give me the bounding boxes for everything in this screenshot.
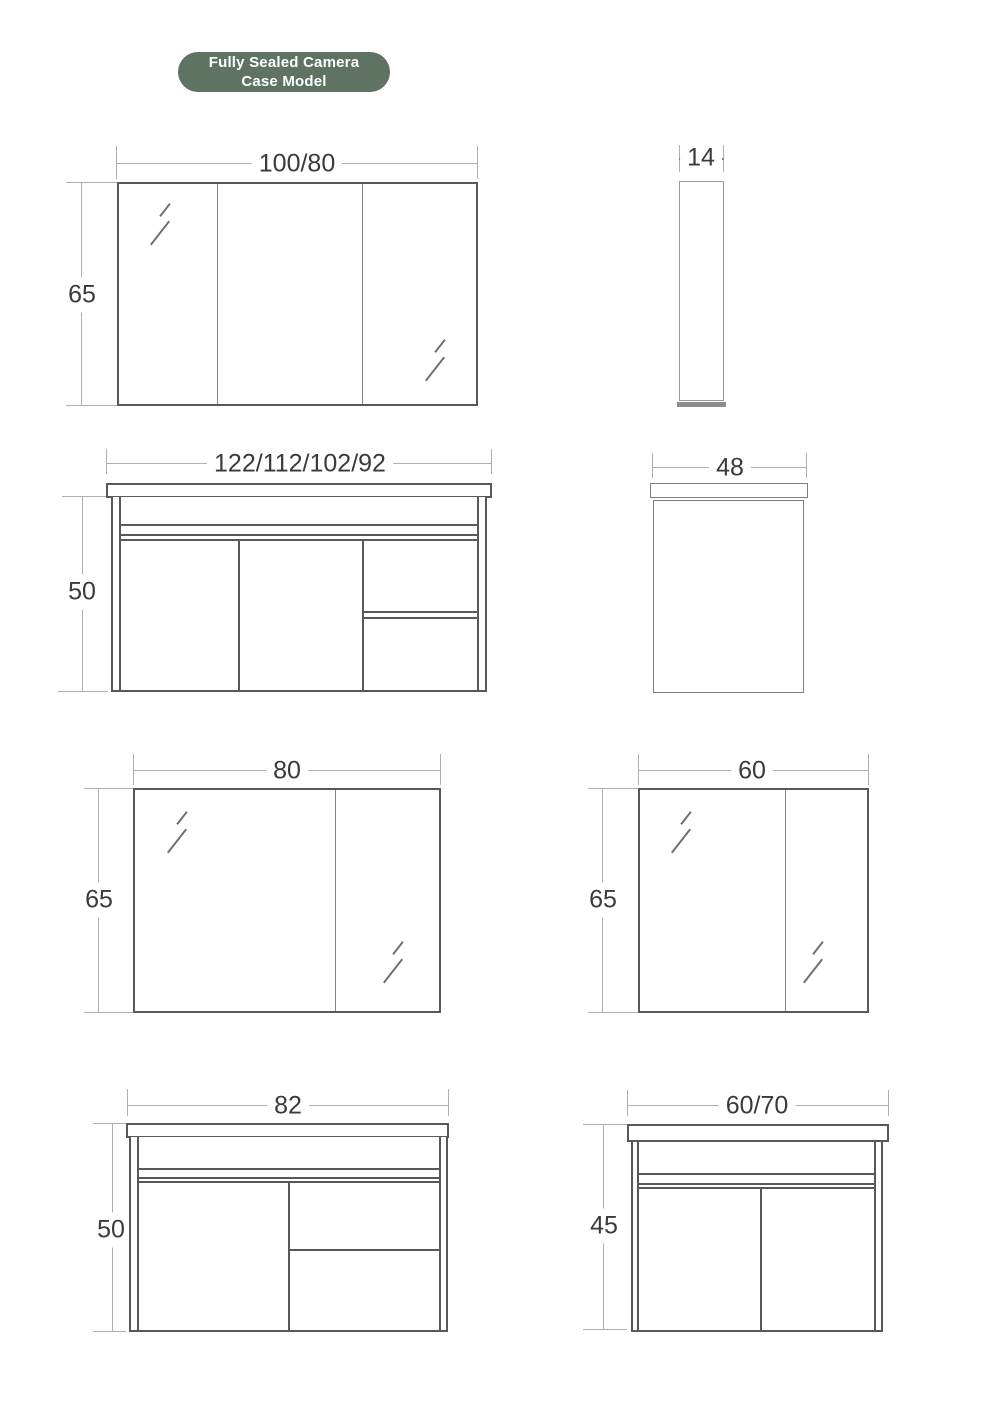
height-dimension-label: 45: [586, 1209, 622, 1244]
side-panel-line: [637, 1142, 639, 1332]
figure-vanity-front-60-70: 60/70 45: [0, 0, 990, 1401]
door-top-line: [638, 1187, 874, 1189]
cabinet-body: [631, 1142, 883, 1332]
rail-line: [638, 1183, 874, 1185]
dim-tick: [888, 1090, 889, 1116]
side-panel-line: [874, 1142, 876, 1332]
spec-sheet: Fully Sealed Camera Case Model 100/80 65…: [0, 0, 990, 1401]
dim-tick: [583, 1124, 627, 1125]
dim-tick: [583, 1329, 627, 1330]
dim-tick: [627, 1090, 628, 1116]
countertop: [627, 1124, 889, 1142]
door-divider: [760, 1187, 762, 1332]
width-dimension-label: 60/70: [719, 1094, 796, 1119]
rail-line: [638, 1173, 874, 1175]
